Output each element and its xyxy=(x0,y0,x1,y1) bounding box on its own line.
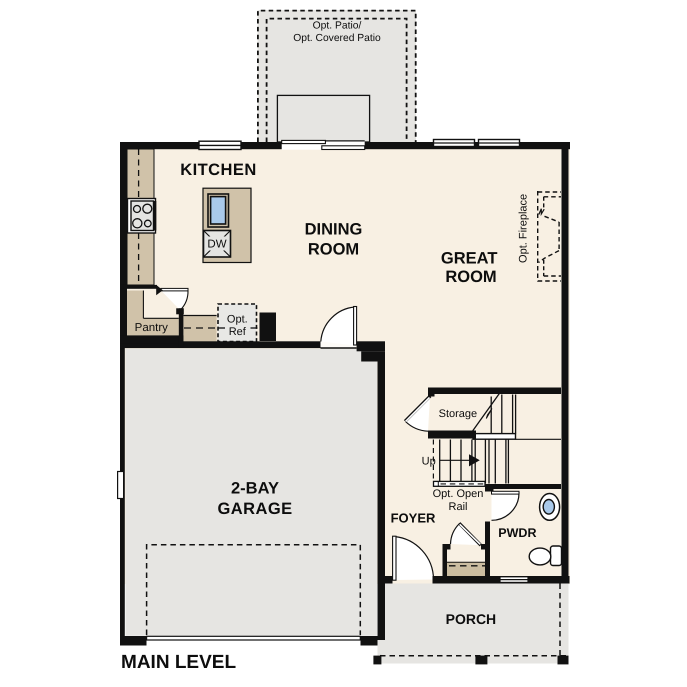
svg-text:ROOM: ROOM xyxy=(308,240,359,258)
svg-text:ROOM: ROOM xyxy=(445,268,496,286)
svg-text:PORCH: PORCH xyxy=(446,611,497,627)
svg-text:GARAGE: GARAGE xyxy=(217,500,292,518)
svg-text:FOYER: FOYER xyxy=(391,510,436,525)
svg-text:2-BAY: 2-BAY xyxy=(231,479,279,497)
svg-text:GREAT: GREAT xyxy=(441,250,498,268)
svg-text:Storage: Storage xyxy=(439,408,478,420)
svg-text:MAIN LEVEL: MAIN LEVEL xyxy=(121,652,236,673)
svg-text:DW: DW xyxy=(207,239,226,251)
svg-text:Up: Up xyxy=(422,456,436,468)
svg-text:Opt. Patio/: Opt. Patio/ xyxy=(313,21,362,32)
svg-text:Opt.: Opt. xyxy=(227,314,248,326)
svg-text:PWDR: PWDR xyxy=(498,526,536,540)
svg-text:Pantry: Pantry xyxy=(135,322,168,334)
svg-text:KITCHEN: KITCHEN xyxy=(180,161,256,179)
svg-text:Opt. Fireplace: Opt. Fireplace xyxy=(518,194,530,263)
svg-text:Ref: Ref xyxy=(229,326,247,338)
svg-text:Opt. Covered Patio: Opt. Covered Patio xyxy=(293,33,381,44)
svg-text:Rail: Rail xyxy=(449,501,468,513)
svg-text:DINING: DINING xyxy=(305,220,363,238)
svg-text:Opt. Open: Opt. Open xyxy=(433,488,484,500)
